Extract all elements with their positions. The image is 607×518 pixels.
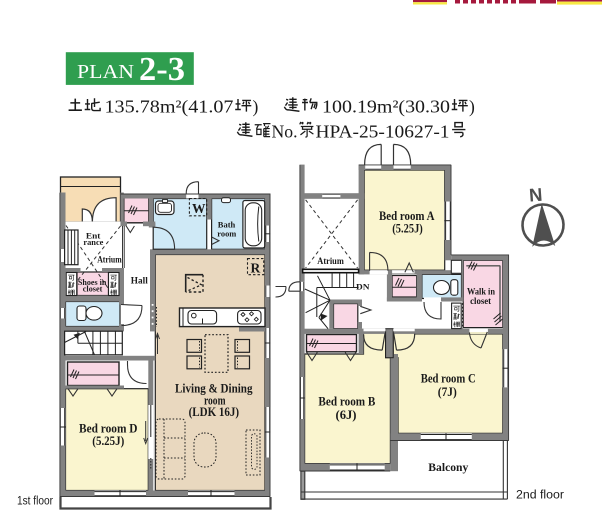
- svg-text:rance: rance: [83, 237, 103, 247]
- svg-text:Bed room C: Bed room C: [421, 372, 476, 386]
- svg-text:): ): [253, 97, 259, 117]
- svg-text:(5.25J): (5.25J): [92, 434, 124, 448]
- svg-text:(5.25J): (5.25J): [392, 222, 423, 236]
- svg-text:(7J): (7J): [438, 385, 457, 399]
- svg-text:2nd floor: 2nd floor: [516, 490, 564, 502]
- svg-text:100.19m²(30.30: 100.19m²(30.30: [322, 97, 450, 117]
- svg-text:R: R: [251, 261, 261, 276]
- svg-text:Bed room B: Bed room B: [318, 395, 375, 409]
- svg-text:(6J): (6J): [336, 408, 357, 422]
- svg-text:DN: DN: [356, 282, 370, 292]
- svg-text:PLAN: PLAN: [77, 61, 134, 83]
- svg-text:No.: No.: [272, 122, 298, 142]
- svg-text:Hall: Hall: [131, 277, 148, 287]
- svg-text:Atrium: Atrium: [317, 256, 344, 266]
- svg-text:1st floor: 1st floor: [17, 496, 53, 508]
- svg-text:Balcony: Balcony: [428, 462, 468, 474]
- svg-text:2-3: 2-3: [139, 51, 185, 88]
- svg-text:135.78m²(41.07: 135.78m²(41.07: [105, 97, 234, 117]
- svg-text:room: room: [217, 229, 237, 239]
- svg-text:closet: closet: [470, 296, 492, 306]
- svg-text:): ): [469, 97, 475, 117]
- svg-text:(LDK 16J): (LDK 16J): [189, 405, 240, 419]
- svg-text:HPA-25-10627-1: HPA-25-10627-1: [316, 122, 450, 142]
- svg-text:W: W: [192, 201, 206, 216]
- svg-text:N: N: [528, 184, 543, 206]
- svg-text:Walk in: Walk in: [467, 287, 495, 297]
- svg-text:Atrium: Atrium: [97, 254, 122, 264]
- svg-text:closet: closet: [83, 285, 103, 294]
